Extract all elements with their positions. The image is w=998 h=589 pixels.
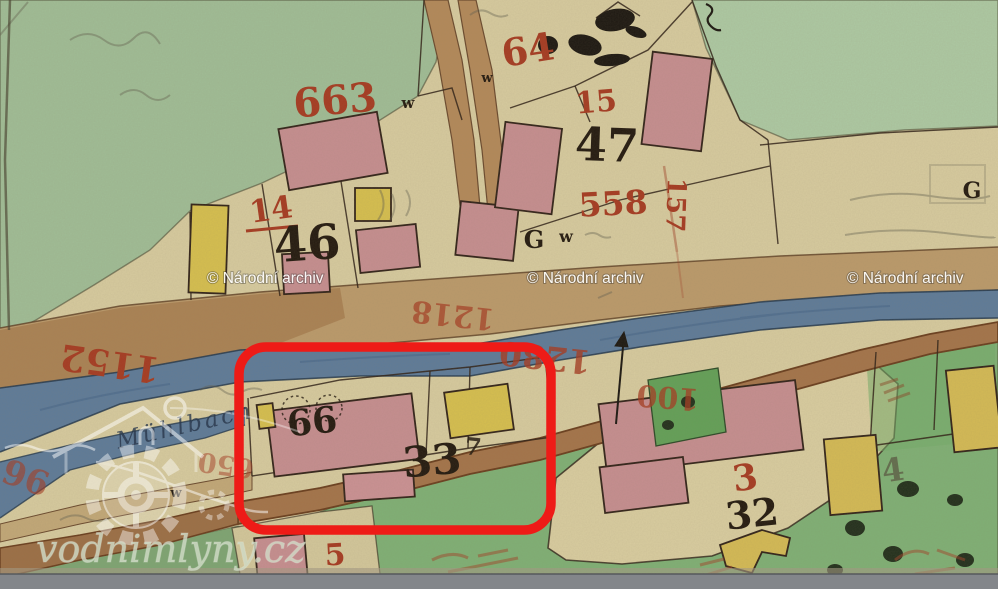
archive-watermark-left: © Národní archiv [207, 270, 324, 287]
historical-cadastral-map: 663 64 15 558 157 14 1152 1218 1280 100 … [0, 0, 998, 589]
waterwheel-hub-icon [131, 490, 141, 500]
scan-edge-bottom [0, 574, 998, 589]
archive-watermark-right: © Národní archiv [847, 270, 964, 287]
archive-watermark-center: © Národní archiv [527, 270, 644, 287]
